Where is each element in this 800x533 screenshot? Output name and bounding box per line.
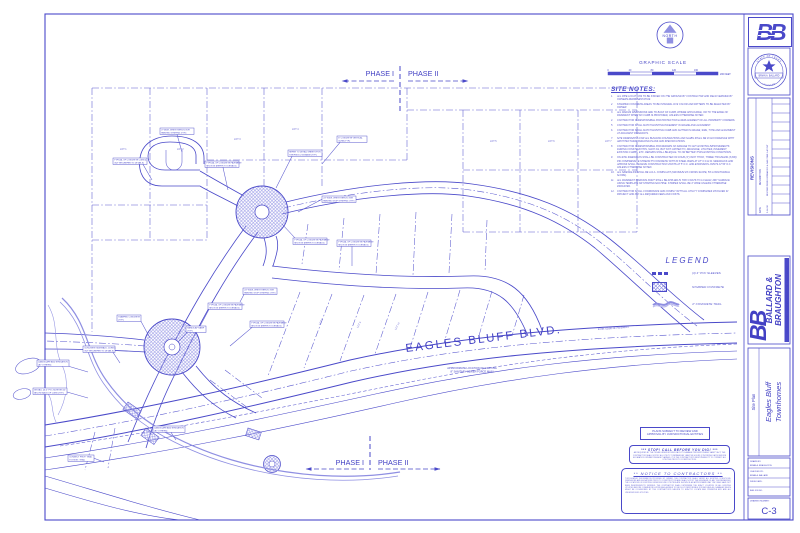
project-name-line2: Townhomes [774, 382, 783, 422]
north-label: NORTH [663, 34, 678, 38]
road-mid-lane [263, 236, 542, 336]
site-notes-list: ALL PIPE LOCATIONS TO BE STAKED ON THE G… [611, 95, 738, 197]
callout-text: PAINTED STOP STRIPING (TYP.) [244, 291, 276, 294]
callout: TYPICAL OF CONCRETE PAVEMENT SECTION (RE… [205, 161, 242, 190]
bb-logo-text: BB [756, 19, 783, 45]
callout-text: SECTION (REFER TO DETAILS) [209, 306, 240, 309]
notice-title: ** NOTICE TO CONTRACTORS ** [625, 471, 731, 476]
callout: 24" WIDE, WHITE REFLECTIVE PAINTED STOP … [240, 288, 277, 302]
scale-tick: 0 [607, 69, 609, 72]
site-notes-title: SITE NOTES: [611, 86, 738, 93]
revision-desc: REVISED DRIVE ENTRANCES & SAN. SWR. LAYO… [766, 144, 769, 196]
callout-text: (BY OTHERS) [38, 364, 51, 366]
field-value: BRIAN A. BRAUGHTON [750, 464, 772, 467]
lot-label: LOT 6 [548, 140, 555, 143]
callout-text: BELOW BACK OF CURB (TYP.) [34, 391, 64, 394]
site-note: ON-SITE SIDEWALKS SHALL BE CONSTRUCTED O… [611, 156, 738, 169]
revisions-col-desc: DESCRIPTION [760, 169, 762, 185]
revision-date: 5-14-08 [767, 205, 769, 213]
callout-text: STAMPED CONCRETE [118, 316, 140, 319]
callout-text: 4" WIDE, WHITE REFLECTIVE [161, 130, 190, 132]
drawing-number-block: DRAWING NUMBER: C-3 [748, 498, 790, 519]
approval-box: PLANS SUBJECT TO REVIEW AND APPROVAL BY … [640, 427, 710, 440]
call-before-dig-body: AS REQUIRED BY THE TEXAS UNDERGROUND FAC… [632, 452, 727, 462]
phase-bottom-left-label: PHASE I [336, 458, 364, 467]
site-note: CONTRACTOR IS RESPONSIBLE FOR PROTECTION… [611, 119, 738, 122]
legend-item-pvc-sleeves: (3) 4" PVC SLEEVES [636, 271, 740, 275]
revisions-title: REVISIONS [750, 156, 755, 180]
callout-text: PAINTED STOP STRIPING (TYP.) [323, 199, 355, 202]
callout-text: SECTION (REFER TO DETAILS) [206, 164, 237, 167]
scale-tick: 120 [672, 69, 677, 72]
legend: LEGEND (3) 4" PVC SLEEVES STAMPED CONCRE… [636, 256, 740, 316]
callout-text: TYPICAL OF CONCRETE PAVEMENT [209, 304, 245, 307]
callout-text: (TYP.) [187, 330, 193, 332]
bb-logo-stripe [758, 35, 781, 36]
concrete-trail-symbol [652, 299, 682, 309]
svg-text:LICENSED: LICENSED [762, 83, 776, 87]
field-label: ISSUE DATE: [750, 480, 763, 483]
fields-block: DRAWN BY: BRIAN A. BRAUGHTON CHECKED BY:… [748, 458, 790, 496]
hammerhead-turnaround [140, 136, 204, 186]
scale-tick: 80 [651, 69, 654, 72]
legend-item-label: STAMPED CONCRETE [692, 285, 724, 289]
seal-name: BRIAN A. BALLARD [759, 75, 780, 78]
callout-text: SECTION (REFER TO DETAILS) [294, 241, 325, 244]
drawing-sheet: PHASE I PHASE II PHASE I PHASE II EAGLES… [0, 0, 800, 533]
pvc-sleeves-symbol [652, 272, 682, 275]
callout-text: REFER TO DETAIL SHEETS FOR [289, 151, 321, 154]
callout-text: SECTION (REFER TO DETAILS) [338, 243, 369, 246]
site-note: ALL PIPE LOCATIONS TO BE STAKED ON THE G… [611, 95, 738, 101]
site-note: CONTRACTOR IS RESPONSIBLE FOR REPAIRS OF… [611, 145, 738, 155]
callout-text: CONCRETE SIDEWALK, CURB & [84, 347, 116, 350]
callouts: 4" WIDE, WHITE REFLECTIVE PAINTED STRIPI… [33, 128, 374, 462]
lot-label: LOT 4 [292, 128, 299, 131]
concrete-trail [60, 298, 400, 480]
firm-name-line2: BRAUGHTON [774, 274, 783, 326]
callout-text: 6" CONCRETE VERTICAL [338, 137, 363, 140]
revisions-block: REVISIONS DATE DESCRIPTION 5-14-08 REVIS… [748, 98, 790, 215]
scale-tick: 40 [629, 69, 632, 72]
force-main-note-line2: 8" SANITARY SEWER FORCE MAIN [450, 369, 493, 373]
firm-block: BB BALLARD & BRAUGHTON CIVIL ENGINEERING… [745, 256, 790, 344]
bb-logo: BB [756, 21, 783, 44]
bb-logo-stripe [758, 30, 781, 31]
lot-grid [92, 88, 637, 332]
callout-text: 24" WIDE, WHITE REFLECTIVE [244, 290, 274, 292]
lot-label: LOT 8 [318, 318, 324, 326]
callout-text: TYPICAL OF CONCRETE PAVEMENT [338, 241, 374, 244]
scale-tick: 160 [694, 69, 699, 72]
callout-text: GUTTER (REFER TO DETAILS) [114, 161, 144, 164]
legend-item-label: 4" CONCRETE TRAIL [692, 302, 722, 306]
callout: CONCRETE SIDEWALK, CURB & GUTTER (REFER … [83, 346, 120, 363]
road-north-stub [200, 171, 244, 206]
notice-to-contractors-box: ** NOTICE TO CONTRACTORS ** TOPOGRAPHIC … [621, 468, 735, 514]
lot-label: LOT 5 [490, 140, 497, 143]
legend-item-label: (3) 4" PVC SLEEVES [692, 271, 721, 275]
callout-text: CONNECT PROP. TRAIL [69, 456, 93, 459]
call-before-dig-box: *** STOP! CALL BEFORE YOU DIG! *** AS RE… [629, 445, 730, 464]
site-note: ALL SIDEWALKS SHALL BE A.D.A. COMPLIANT … [611, 171, 738, 177]
callout-text: HANDICAP RAMP [187, 327, 205, 330]
stamped-concrete-symbol [652, 282, 682, 292]
site-note: ALL PAVEMENT MARKING PAINT SHALL BE APPL… [611, 179, 738, 189]
callout-text: TYPICAL OF CONCRETE CURB & [114, 159, 147, 162]
road-southeast [182, 366, 256, 418]
callout-text: (BY OTHERS) [154, 430, 167, 432]
north-arrow: NORTH [657, 22, 683, 48]
project-name-line1: Eagles Bluff [764, 381, 773, 422]
approval-line2: APPROVAL BY JURISDICTIONAL ENTITIES [642, 433, 708, 437]
callout-text: CURB (TYP.) [338, 140, 350, 142]
firm-tagline: CIVIL ENGINEERING - LANDSCAPE ARCHITECTU… [786, 266, 789, 334]
site-notes: SITE NOTES: ALL PIPE LOCATIONS TO BE STA… [611, 86, 738, 198]
phase-divider-top: PHASE I PHASE II [342, 66, 468, 112]
lot-label: LOT 10 [394, 321, 401, 330]
site-note: CONTRACTOR SHALL MATCH EXISTING PAVEMENT… [611, 124, 738, 127]
legend-item-stamped-concrete: STAMPED CONCRETE [636, 282, 740, 292]
callout: INSTALL (3) 4" PVC SLEEVES 24" BELOW BAC… [33, 388, 88, 398]
phase-top-right-label: PHASE II [408, 69, 438, 78]
callout: STAMPED CONCRETE (TYP.) [117, 315, 150, 338]
lot-label: LOT 2 [177, 148, 184, 151]
callout: TYPICAL OF CONCRETE PAVEMENT SECTION (RE… [337, 240, 374, 266]
drawing-number: C-3 [761, 506, 776, 517]
drawing-number-label: DRAWING NUMBER: [750, 500, 770, 503]
force-main-note: APPROXIMATE LOCATION OF EXISTING 8" SANI… [447, 366, 496, 373]
lot-label: LOT 9 [356, 321, 362, 329]
force-main-note-line1: APPROXIMATE LOCATION OF EXISTING [447, 366, 496, 370]
callout-text: SECTION (REFER TO DETAILS) [251, 324, 282, 327]
bb-logo-box: BB [748, 17, 792, 47]
phase-divider-bottom: PHASE I PHASE II [306, 436, 440, 470]
callout-text: TO EXIST. TRAIL [69, 458, 86, 461]
callout: TYPICAL OF CONCRETE PAVEMENT SECTION (RE… [230, 321, 287, 346]
revision-row-lines [772, 104, 790, 203]
callout-text: GUTTER (REFER TO DETAILS) [84, 349, 114, 352]
callout: TYPICAL OF CONCRETE CURB & GUTTER (REFER… [113, 158, 152, 180]
site-note: ALL RADIUS DIMENSIONS ARE TO BACK OF CUR… [611, 111, 738, 117]
callout-text: PAINTED STRIPING (TYP.) [161, 131, 186, 134]
project-block: Site Plan Eagles Bluff Townhomes [748, 348, 790, 456]
site-note: CONTRACTOR SHALL COORDINATE AND COMPLY W… [611, 190, 738, 196]
phase-top-left-label: PHASE I [366, 69, 394, 78]
callout-text: LANDSCAPE AND IRRIGATION [154, 427, 184, 430]
callout-text: TYPICAL OF CONCRETE PAVEMENT [294, 239, 330, 242]
seal-bottom-text: LICENSED [762, 83, 776, 87]
site-note: CONTRACTOR SHALL MATCH EXISTING CURB AND… [611, 129, 738, 135]
callout-text: (TYP.) [118, 319, 124, 321]
callout-text: TYPICAL OF CONCRETE PAVEMENT [251, 322, 287, 325]
legend-item-concrete-trail: 4" CONCRETE TRAIL [636, 299, 740, 309]
stamped-intersection-1 [236, 186, 288, 238]
seal-star [763, 60, 776, 72]
lot-labels: LOT 1 LOT 2 LOT 3 LOT 4 LOT 5 LOT 6 LOT … [120, 128, 612, 330]
graphic-scale-title: GRAPHIC SCALE [639, 60, 687, 65]
site-note: SITE DIMENSIONS FOR ALL BUILDING FOUNDAT… [611, 137, 738, 143]
phase-bottom-right-label: PHASE II [378, 458, 408, 467]
lot-label: LOT 3 [234, 138, 241, 141]
field-label: DRAWN BY: [750, 460, 762, 463]
revisions-col-date: DATE [759, 207, 762, 213]
boulevard-label: EAGLES BLUFF BLVD. [405, 324, 563, 355]
callout: CONNECT PROP. TRAIL TO EXIST. TRAIL [68, 455, 104, 462]
callout-text: LANDSCAPE AND IRRIGATION [38, 361, 68, 364]
callout-text: INSTALL (3) 4" PVC SLEEVES 24" [34, 389, 66, 392]
field-value: BRIAN A. BALLARD [750, 474, 769, 477]
notice-body: TOPOGRAPHIC INFORMATION PROVIDED BY OWNE… [625, 478, 731, 495]
sheet-title: Site Plan [751, 393, 756, 410]
firm-name-line1: BALLARD & [765, 276, 774, 323]
scale-end-label: 200 FEET [720, 73, 731, 76]
field-label: B&B JOB NO: [750, 490, 763, 492]
callout-text: 24" WIDE, WHITE REFLECTIVE [323, 198, 353, 200]
callout-text: STRIPING & SIGNAGE (TYP.) [289, 153, 317, 156]
site-note: STAMPED CONCRETE AREAS TO BE INTEGRAL DY… [611, 103, 738, 109]
legend-title: LEGEND [636, 256, 740, 265]
field-label: CHECKED BY: [750, 471, 764, 473]
engineer-seal: STATE OF TEXAS BRIAN A. BALLARD LICENSED [748, 48, 790, 95]
call-before-dig-title: *** STOP! CALL BEFORE YOU DIG! *** [632, 448, 727, 452]
callout: REFER TO DETAIL SHEETS FOR STRIPING & SI… [276, 150, 322, 188]
lot-label: LOT 1 [120, 148, 127, 151]
graphic-scale: GRAPHIC SCALE 0 40 80 120 160 200 FEET [607, 60, 731, 76]
callout-text: TYPICAL OF CONCRETE PAVEMENT [206, 162, 242, 165]
